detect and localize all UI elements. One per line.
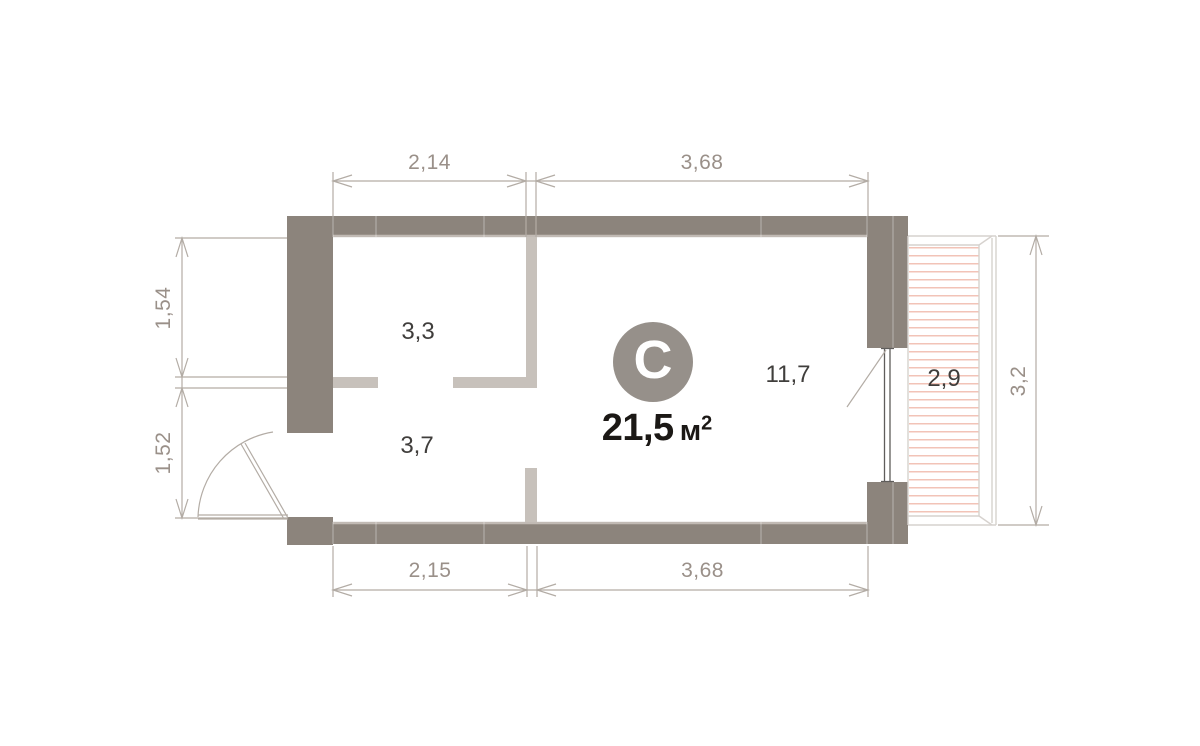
balcony-door-swing-line — [847, 350, 886, 407]
room-area-label-top: 3,3 — [368, 318, 468, 346]
entry-door — [198, 432, 288, 519]
total-area-exponent: 2 — [701, 412, 712, 434]
room-area-label-bottom: 3,7 — [367, 432, 467, 460]
interior-partitions — [333, 237, 537, 522]
total-area-unit: м — [680, 415, 701, 447]
dimension-label-left-upper: 1,54 — [152, 238, 176, 378]
unit-type-badge: С — [613, 322, 693, 402]
total-area-value: 21,5 — [602, 407, 674, 449]
dimension-label-top-left: 2,14 — [333, 151, 526, 175]
dimension-label-left-lower: 1,52 — [152, 383, 176, 523]
balcony-door — [847, 349, 894, 482]
unit-type-letter: С — [634, 333, 673, 391]
dimension-label-bottom-left: 2,15 — [333, 559, 527, 583]
dimension-label-right: 3,2 — [1007, 311, 1031, 451]
room-area-label-living: 11,7 — [738, 361, 838, 389]
floor-plan: 2,14 3,68 2,15 3,68 1,54 1,52 3,2 3,3 3,… — [0, 0, 1200, 746]
dimension-label-bottom-right: 3,68 — [537, 559, 868, 583]
dimension-label-top-right: 3,68 — [536, 151, 868, 175]
total-area-label: 21,5м2 — [557, 407, 757, 450]
room-area-label-balcony: 2,9 — [894, 365, 994, 393]
